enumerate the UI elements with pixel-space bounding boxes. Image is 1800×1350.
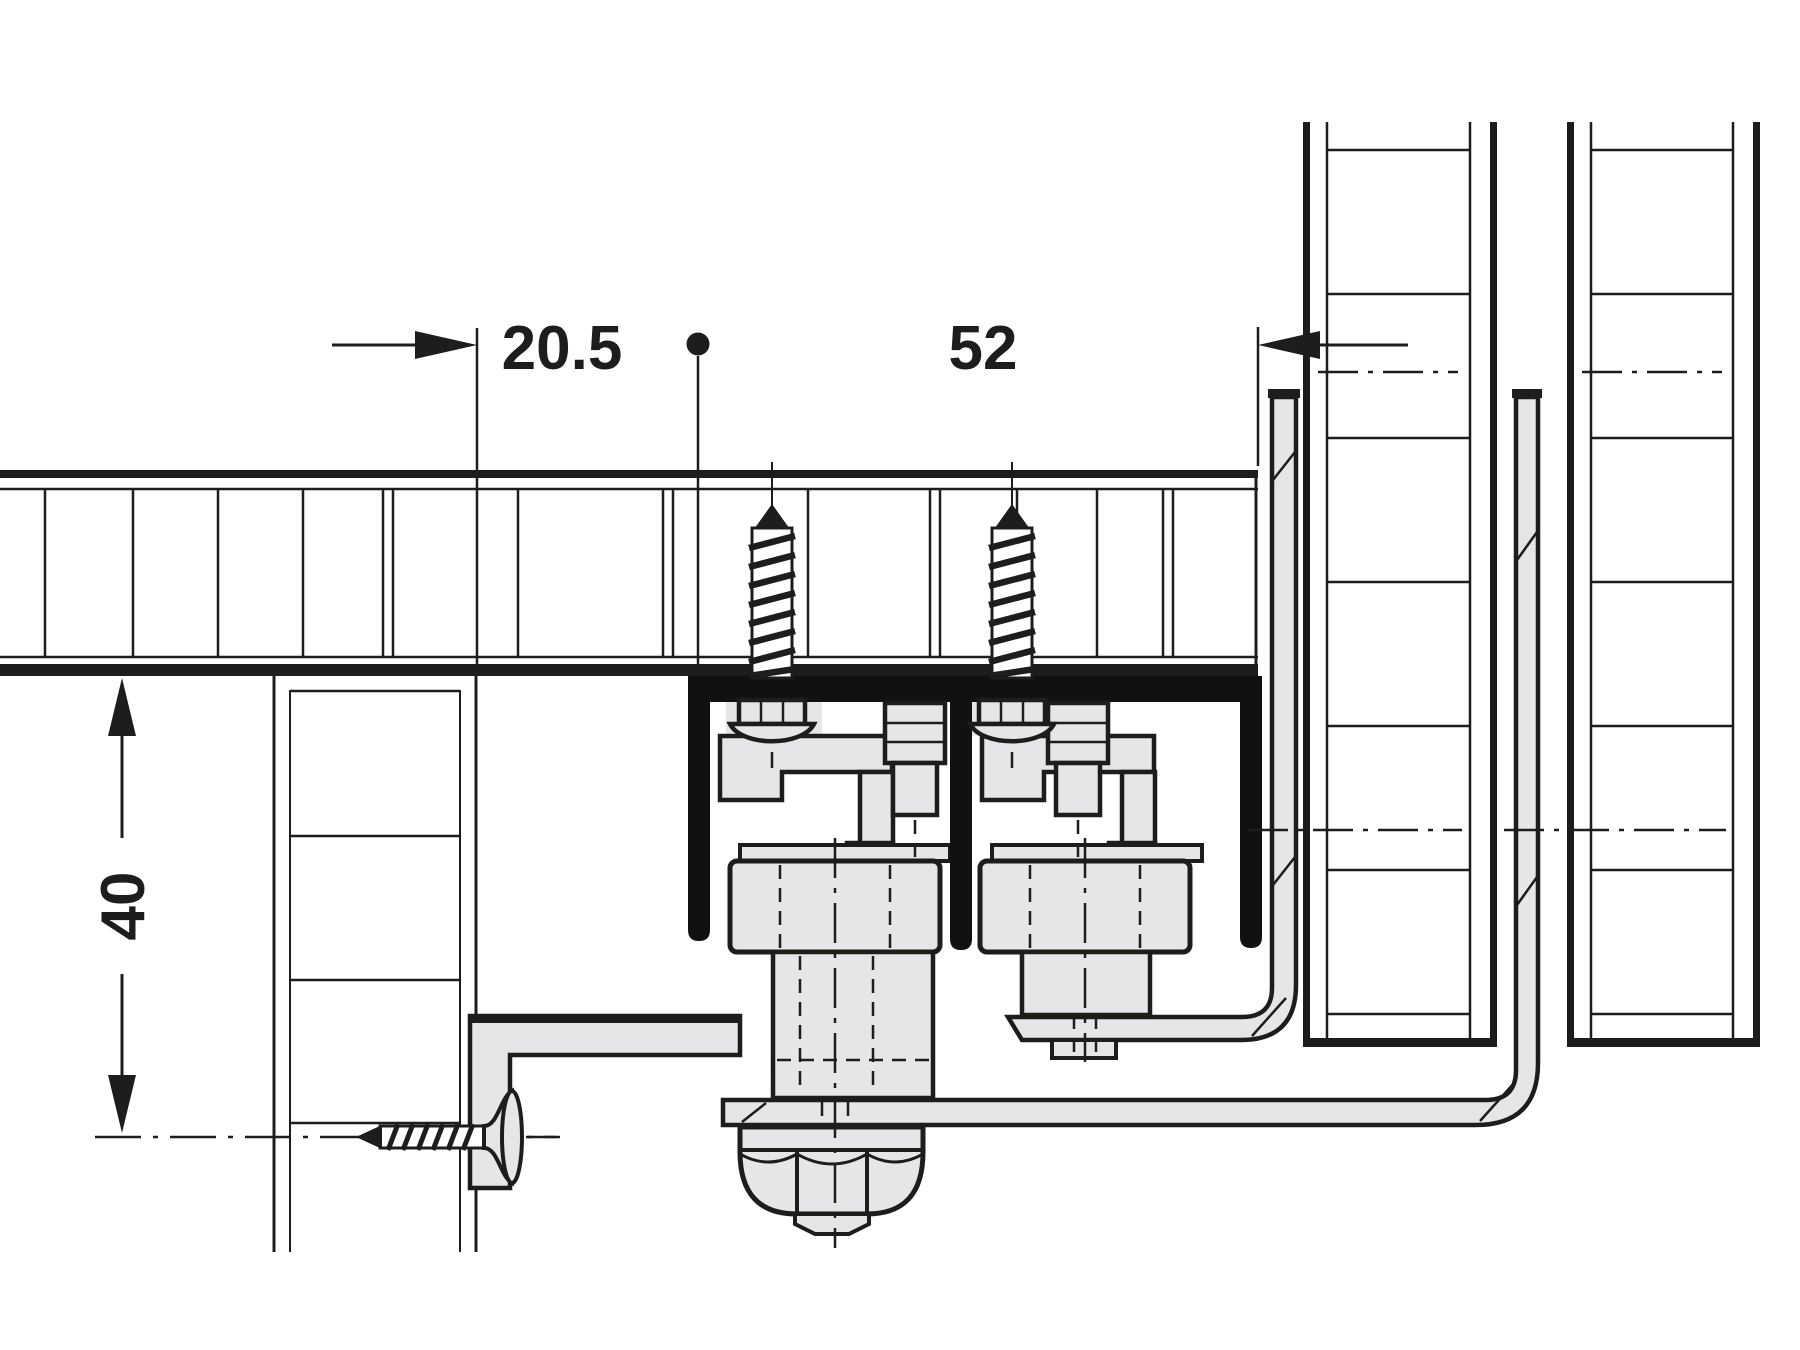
- screw1-head: [739, 700, 805, 724]
- dim-40-label: 40: [89, 872, 158, 941]
- dim-20-5-label: 20.5: [502, 314, 623, 383]
- track-fixing-screw-rear: [970, 462, 1054, 768]
- fitting-cross-section-diagram: 20.5 52 40: [0, 0, 1800, 1350]
- track-rear-lip: [1240, 690, 1262, 948]
- track-middle-lip: [950, 690, 972, 950]
- dim-arrow-down-icon: [108, 1075, 136, 1133]
- adjuster-bolt-front: [885, 703, 945, 815]
- pivot-nut: [740, 1127, 923, 1234]
- dim-dot-marker-icon: [687, 333, 710, 356]
- door-front-hatch: [1327, 150, 1470, 1014]
- technical-drawing-canvas: 20.5 52 40: [0, 0, 1800, 1350]
- track-front-lip: [688, 690, 710, 941]
- door-rear-bottom-edge: [1567, 1038, 1760, 1047]
- dim-arrow-left-icon: [1258, 331, 1320, 359]
- top-panel: [0, 470, 1258, 676]
- top-panel-top-edge: [0, 470, 1258, 478]
- flat-screw-head-flange: [502, 1091, 522, 1183]
- carriage1-axle-block: [773, 952, 933, 1098]
- door-front-bottom-edge: [1303, 1038, 1497, 1047]
- dimension-center-distance: 52: [949, 314, 1408, 466]
- angle-rear-top-edge: [1512, 389, 1542, 398]
- door-panel-front: [1303, 122, 1497, 1047]
- dim-52-label: 52: [949, 314, 1018, 383]
- dimension-bottom-offset: 40: [89, 678, 158, 1133]
- carriage1-hanger-arm: [860, 772, 893, 848]
- dimension-front-offset: 20.5: [332, 314, 710, 674]
- dim-arrow-up-icon: [108, 678, 136, 736]
- side-wall-hatch: [290, 691, 460, 1123]
- angle-front-top-edge: [1268, 389, 1300, 398]
- flat-head-screw: [356, 1091, 556, 1183]
- top-panel-bottom-edge: [0, 664, 1258, 676]
- carriage2-hanger-arm: [1122, 772, 1155, 848]
- flat-screw-tip: [356, 1125, 382, 1149]
- screw2-head: [979, 700, 1045, 724]
- door-panel-rear: [1567, 122, 1760, 1047]
- side-wall-panel: [274, 676, 476, 1252]
- dim-arrow-right-icon: [415, 331, 477, 359]
- door-rear-hatch: [1591, 150, 1733, 1014]
- pivot-nut-cap: [795, 1214, 869, 1234]
- track-fixing-screw-front: [730, 462, 814, 768]
- adjuster-bolt-rear: [1048, 703, 1108, 815]
